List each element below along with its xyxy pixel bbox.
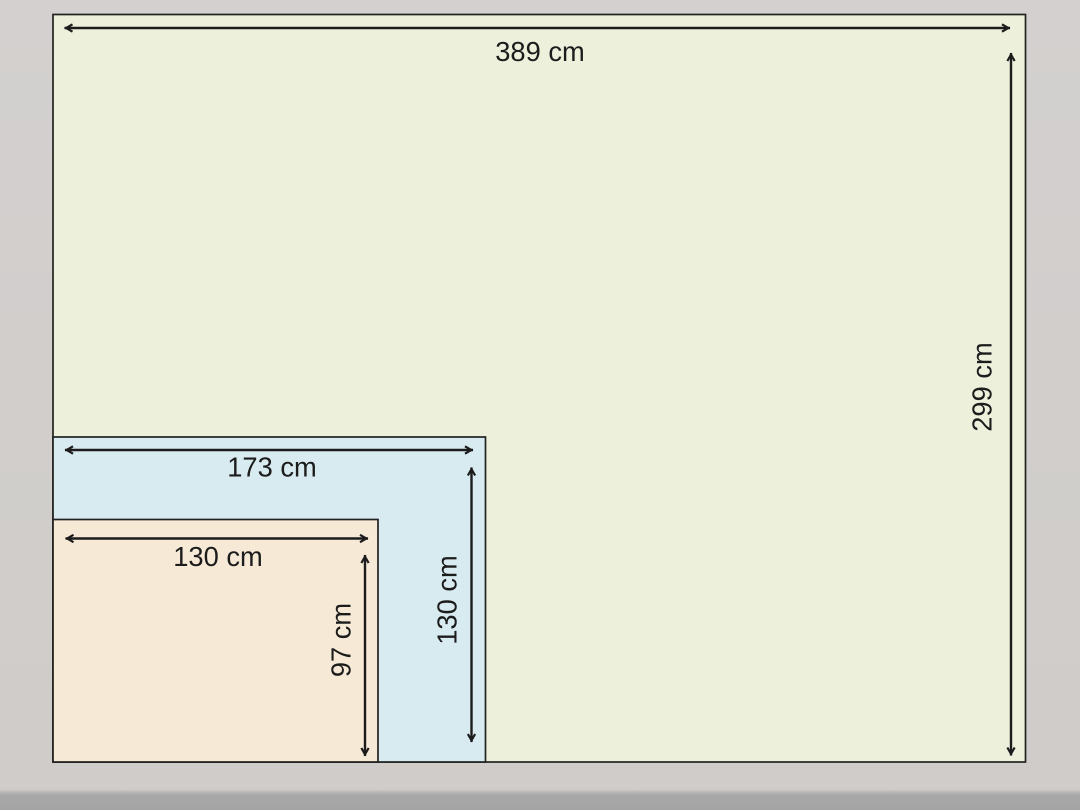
- svg-text:299 cm: 299 cm: [967, 342, 998, 432]
- svg-text:97 cm: 97 cm: [326, 603, 357, 677]
- svg-text:389 cm: 389 cm: [495, 36, 585, 67]
- svg-text:130 cm: 130 cm: [432, 555, 463, 645]
- svg-text:130 cm: 130 cm: [173, 541, 263, 572]
- svg-text:173 cm: 173 cm: [227, 452, 317, 483]
